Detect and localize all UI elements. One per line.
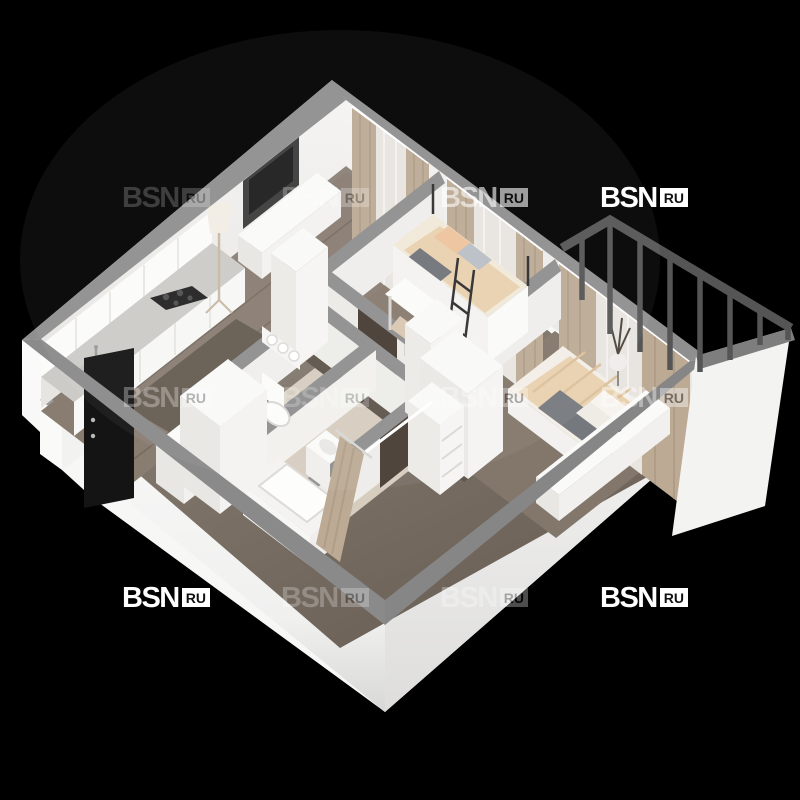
- light-overlay: [20, 30, 660, 490]
- floor-plan-stage: BSNRUBSNRUBSNRUBSNRUBSNRUBSNRUBSNRUBSNRU…: [0, 0, 800, 800]
- floor-plan-render: [0, 0, 800, 800]
